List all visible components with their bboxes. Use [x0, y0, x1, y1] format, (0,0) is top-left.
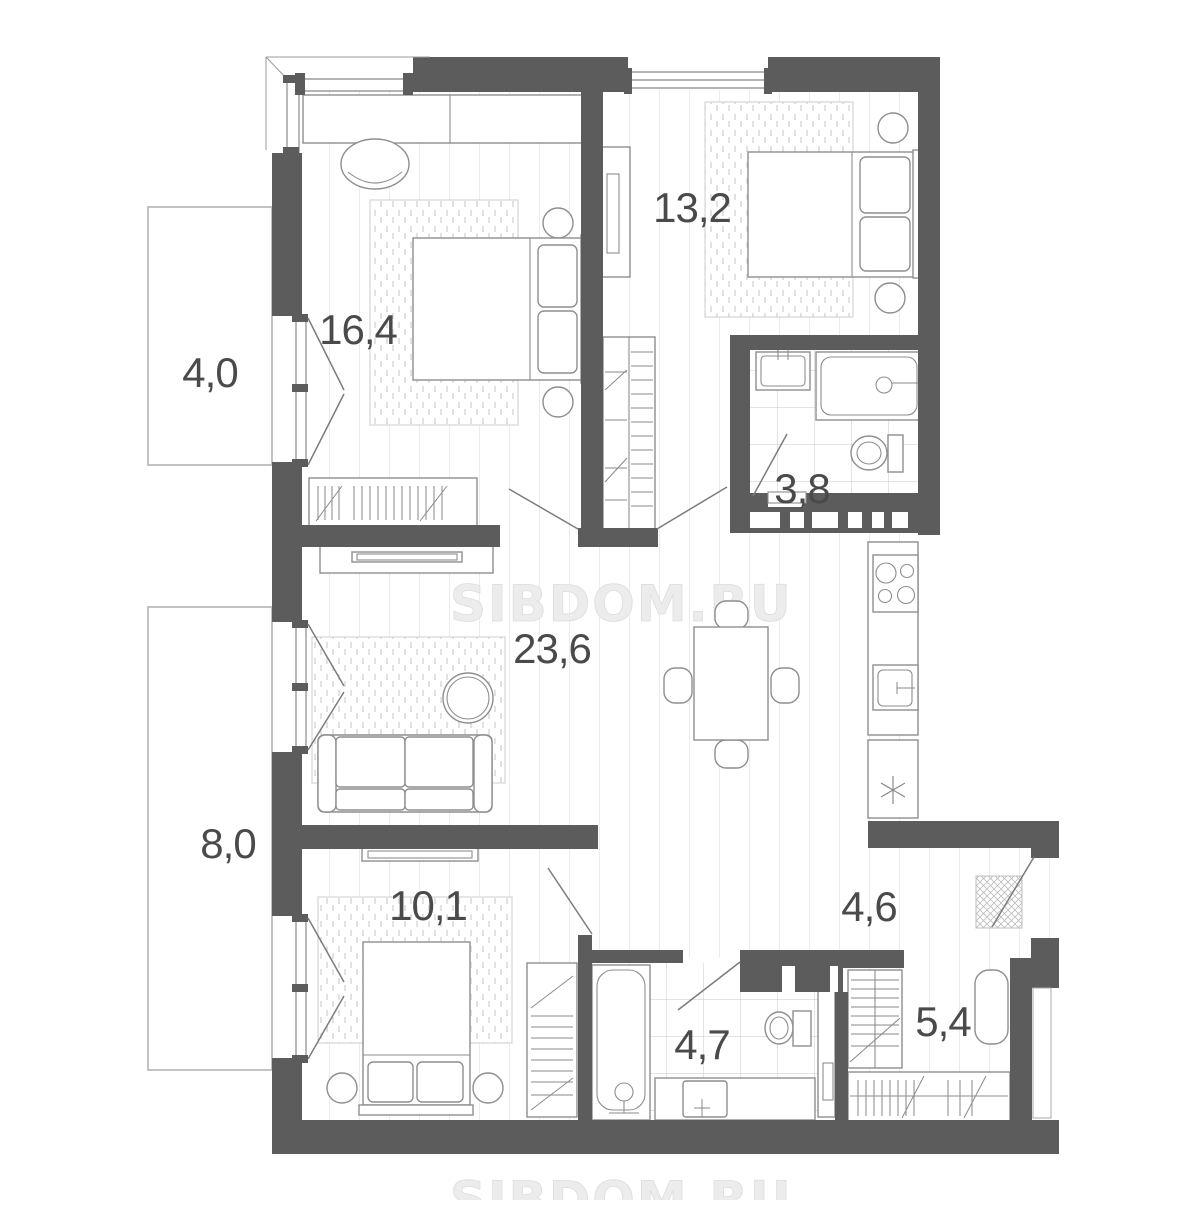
area-label-balcony-bottom: 8,0	[200, 820, 255, 867]
wardrobe	[527, 963, 577, 1117]
floor-plan-page: SIBDOM.RU	[0, 0, 1200, 1200]
wardrobe	[303, 95, 590, 143]
pillow	[538, 311, 577, 373]
pillow	[368, 1062, 413, 1102]
pillow	[417, 1062, 463, 1102]
bench	[975, 970, 1008, 1044]
tall-wardrobe	[600, 147, 630, 277]
nightstand	[875, 283, 905, 313]
nightstand	[543, 208, 573, 238]
wall-shelf	[362, 848, 478, 861]
sink	[756, 352, 810, 390]
dresser	[309, 478, 477, 527]
kitchen-counter	[868, 542, 918, 818]
area-label-balcony-top: 4,0	[182, 349, 237, 396]
watermark-text-partial: SIBDOM.RU	[450, 1171, 793, 1200]
toilet-tank	[793, 1011, 811, 1046]
armchair	[341, 139, 409, 189]
shoe-rack	[848, 1072, 1010, 1122]
vanity	[655, 1078, 815, 1120]
dining-table	[694, 627, 768, 740]
nightstand	[473, 1073, 503, 1103]
stove	[873, 555, 918, 612]
pillow	[860, 157, 910, 213]
area-label-living-kitchen: 23,6	[513, 625, 591, 672]
wall-niche	[1033, 988, 1051, 1118]
chair	[771, 668, 799, 703]
hall-closet	[603, 337, 655, 530]
sink	[683, 1081, 727, 1117]
toilet-tank	[888, 435, 903, 472]
balcony-top-outline	[148, 207, 272, 465]
tv-console	[320, 543, 493, 573]
sofa	[318, 735, 492, 812]
pillow	[538, 245, 577, 307]
area-label-hall: 4,6	[841, 883, 896, 930]
chair	[664, 668, 692, 703]
area-label-bedroom-main: 16,4	[319, 306, 397, 353]
pillow	[860, 217, 910, 271]
chair	[715, 601, 748, 629]
doormat	[976, 876, 1022, 928]
nightstand	[327, 1073, 357, 1103]
area-label-bathroom-small: 3,8	[774, 465, 829, 512]
bathtub	[592, 965, 650, 1120]
nightstand	[878, 113, 908, 143]
area-label-bedroom-third: 10,1	[389, 882, 467, 929]
toilet	[851, 436, 887, 470]
chair	[715, 740, 748, 768]
bathtub	[816, 352, 922, 420]
coffee-table	[443, 673, 493, 723]
area-label-bedroom-second: 13,2	[653, 184, 731, 231]
area-label-bathroom-main: 4,7	[674, 1021, 729, 1068]
area-label-wardrobe-room: 5,4	[915, 998, 971, 1045]
closet	[848, 970, 902, 1068]
headboard	[359, 1105, 473, 1115]
nightstand	[543, 387, 573, 417]
floor-plan-drawing: SIBDOM.RU	[0, 0, 1200, 1200]
